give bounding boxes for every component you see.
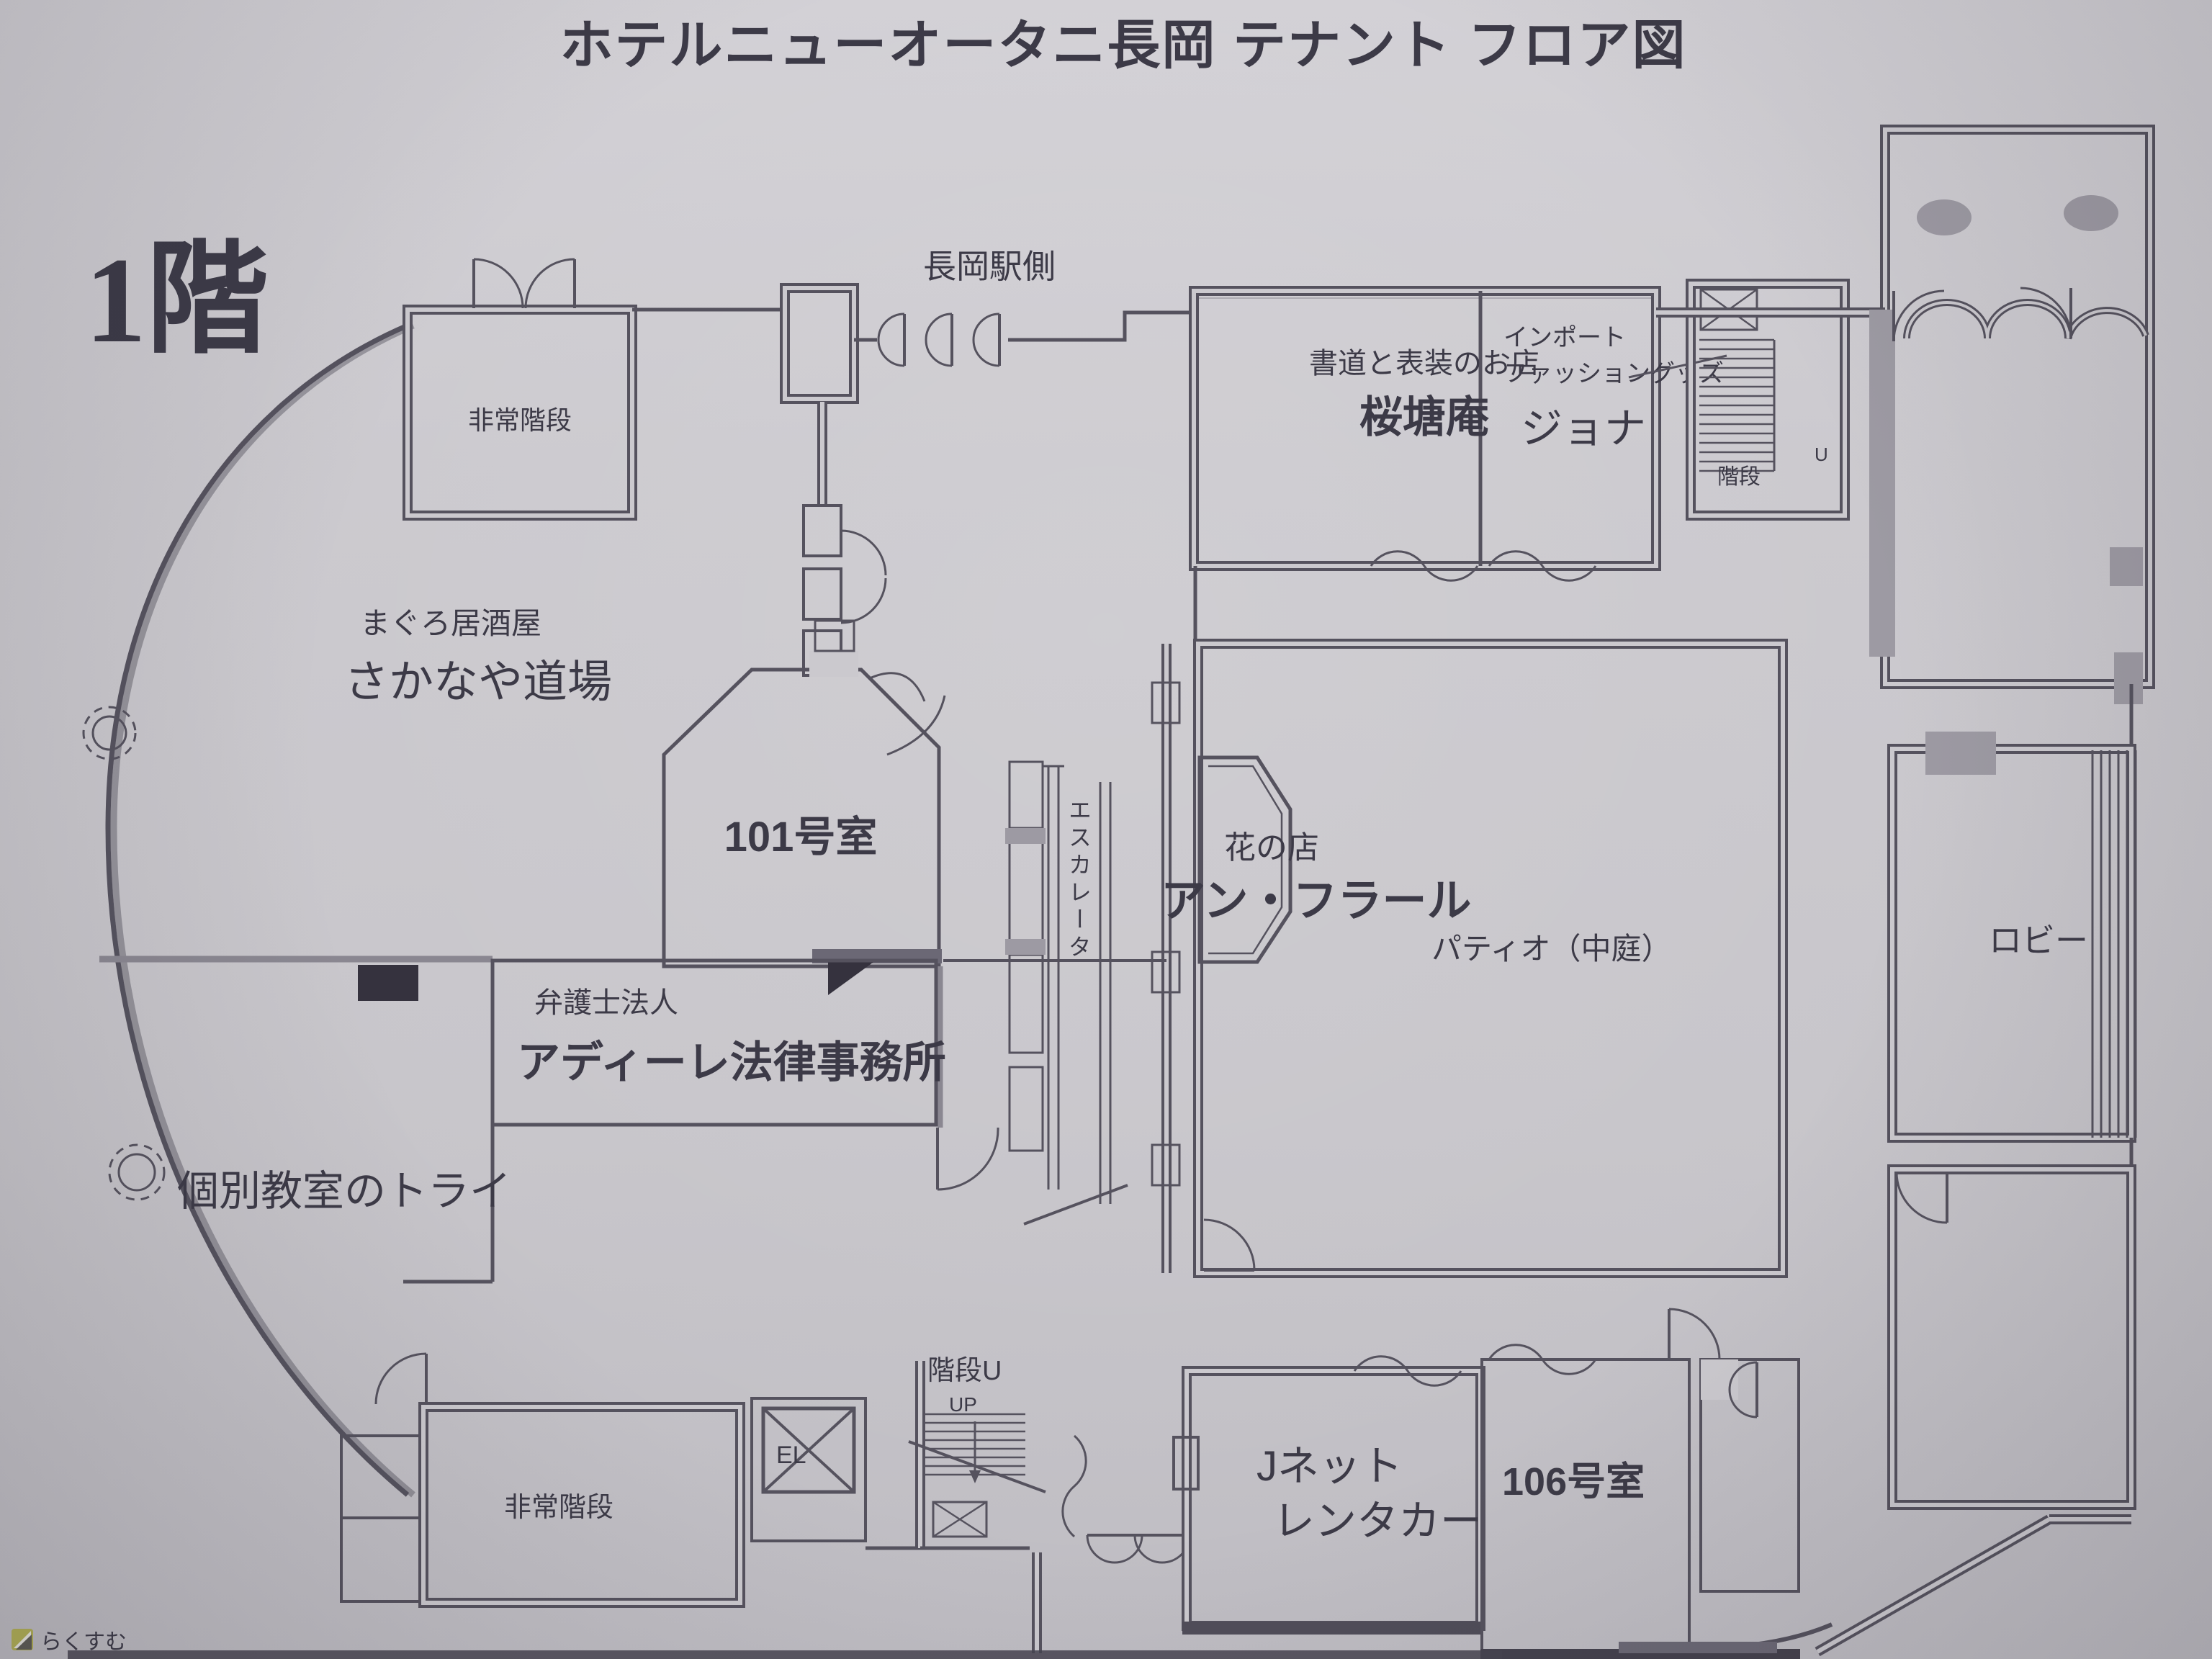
side-cells (341, 1436, 421, 1601)
page-title: ホテルニューオータニ長岡 テナント フロア図 (559, 15, 1686, 75)
vestibule-outline-inner (785, 288, 854, 399)
column-core-lower (119, 1154, 155, 1190)
curved-wall-ghost (114, 325, 413, 1495)
west-wall-niches (1010, 762, 1043, 1151)
patio: パティオ（中庭） (1152, 644, 1783, 1273)
room-label: 非常階段 (468, 405, 572, 435)
izakaya-name-label: さかなや道場 (344, 657, 612, 707)
flower-name-label: アン・フラール (1161, 876, 1472, 926)
lobby-label: ロビー (1989, 922, 2088, 959)
floor-label: 1階 (85, 233, 269, 368)
watermark-text: らくすむ (40, 1630, 127, 1654)
door-arc (376, 1354, 426, 1404)
room-106-shape (1482, 1359, 1689, 1655)
entrance-door-chords (904, 314, 999, 366)
room-emergency-stairs-bottom: 非常階段 (341, 1354, 740, 1603)
double-door-butterfly (1063, 1436, 1086, 1537)
south-thick-wall (1182, 1622, 1482, 1635)
room-emergency-stairs-top: 非常階段 (408, 259, 632, 516)
door-leaves (474, 259, 575, 308)
patio-label: パティオ（中庭） (1431, 932, 1671, 966)
import-name-label: ジョナ (1521, 405, 1646, 452)
escalator-label: エスカレータ (1066, 798, 1092, 962)
column-oval-left (1917, 199, 1972, 235)
shaft-outline (752, 1398, 866, 1541)
escalator: エスカレータ (1005, 762, 1128, 1224)
flower-shop: 花の店 アン・フラール (1161, 757, 1472, 962)
wall-black-flag (828, 961, 876, 995)
top-corridor (632, 288, 1194, 675)
patio-door-arc (1204, 1220, 1254, 1270)
door-arc (1669, 1309, 1719, 1359)
room-106: 106号室 (1480, 1309, 1800, 1659)
photo-bottom-edge (68, 1650, 1502, 1659)
stairs-ne-u-label: U (1815, 444, 1828, 465)
stair-outline (1691, 284, 1845, 516)
stairs-up-label: UP (949, 1393, 977, 1416)
calligraphy-name-label: 桜塘庵 (1359, 393, 1489, 441)
bottom-right-block (1619, 1169, 2131, 1653)
watermark: らくすむ (12, 1629, 127, 1654)
building-north-shops: 書道と表装のお店 桜塘庵 インポート ファッショングッズ ジョナ (1194, 287, 1727, 644)
diagonal-wall-inner (1817, 1519, 2049, 1652)
annex-notch (1701, 1359, 1738, 1400)
door-arc (1897, 1172, 1947, 1223)
entrance-door-arcs (878, 314, 999, 366)
gray-pier-lower (2114, 652, 2143, 704)
niche-pier-2 (1005, 939, 1046, 955)
gray-pier-upper (2110, 547, 2143, 586)
room-izakaya: まぐろ居酒屋 さかなや道場 (344, 606, 612, 707)
stairs-ne-label: 階段 (1717, 465, 1761, 489)
column-symbol-upper (84, 707, 135, 759)
corridor-wall-right (1008, 313, 1194, 340)
door-swing-arcs (474, 259, 575, 308)
arched-portal-outer (1907, 302, 2146, 338)
escalator-base-line (1024, 1185, 1128, 1224)
room-101-label: 101号室 (724, 814, 878, 860)
niche-pier-1 (1005, 828, 1046, 844)
gray-wall-bar (1869, 310, 1895, 657)
stair-outline-inner (1691, 284, 1845, 516)
import-sub1-label: インポート (1503, 324, 1626, 351)
vestibule-outline (785, 288, 854, 399)
lobby-gray-pier (1925, 732, 1996, 775)
floor-plan-photo: ホテルニューオータニ長岡 テナント フロア図 1階 長岡駅側 非常階段 まぐろ居… (0, 0, 2212, 1659)
elevator: EL (752, 1398, 920, 1548)
stairs-center: 階段U UP (909, 1356, 1190, 1653)
law-door-arc (938, 1128, 998, 1190)
rentacar-line2-label: レンタカー (1273, 1498, 1482, 1545)
base-hatch-bar (1619, 1642, 1777, 1653)
flower-sub-label: 花の店 (1224, 830, 1319, 866)
xbox-diagonals (933, 1502, 986, 1537)
izakaya-sub-label: まぐろ居酒屋 (360, 606, 541, 640)
stairs-center-label: 階段U (927, 1356, 1002, 1386)
left-curved-wall (84, 325, 413, 1495)
column-symbol-lower (109, 1145, 164, 1200)
room-rentacar: Jネット レンタカー (1174, 1357, 1482, 1635)
east-door-arcs (1087, 1535, 1190, 1563)
room-101-door-box (815, 621, 854, 651)
tutoring-label: 個別教室のトライ (177, 1168, 511, 1215)
door-pocket-arcs (841, 531, 886, 623)
room-101-door-gap (809, 651, 858, 677)
law-sub-label: 弁護士法人 (534, 987, 678, 1019)
column-oval-right (2064, 195, 2118, 231)
entrance-hall (1656, 130, 2150, 749)
room-label: 非常階段 (504, 1493, 613, 1523)
law-name-label: アディーレ法律事務所 (517, 1038, 946, 1087)
rentacar-line1-label: Jネット (1256, 1443, 1403, 1490)
law-office: 弁護士法人 アディーレ法律事務所 (99, 959, 1166, 1282)
wall-black-block (358, 965, 418, 1001)
stairs-northeast: 階段 U (1691, 284, 1845, 516)
room-106-label: 106号室 (1502, 1460, 1645, 1503)
station-side-label: 長岡駅側 (923, 248, 1056, 285)
elevator-label: EL (776, 1442, 806, 1469)
lobby: ロビー (1892, 732, 2136, 1169)
arrow-head (969, 1470, 981, 1483)
